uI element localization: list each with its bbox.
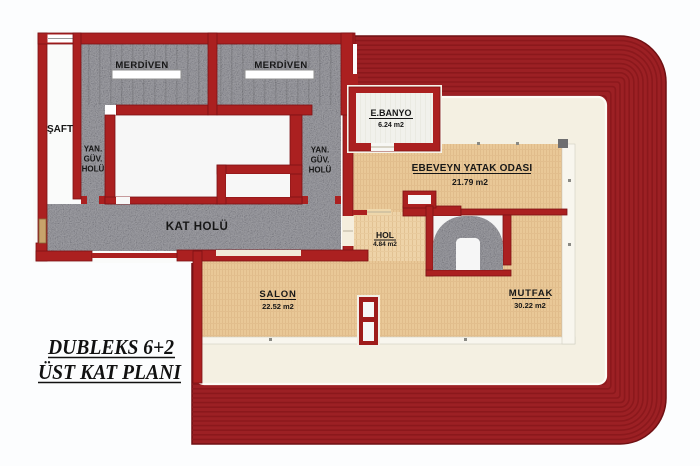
svg-text:YAN.: YAN. — [84, 145, 102, 154]
svg-text:DUBLEKS 6+2: DUBLEKS 6+2 — [47, 335, 174, 359]
svg-text:6.24 m2: 6.24 m2 — [378, 122, 404, 129]
svg-text:MUTFAK: MUTFAK — [509, 288, 553, 299]
svg-text:4.84 m2: 4.84 m2 — [373, 241, 397, 248]
svg-text:SALON: SALON — [259, 289, 296, 300]
svg-text:30.22 m2: 30.22 m2 — [514, 301, 546, 310]
svg-text:HOLÜ: HOLÜ — [309, 166, 332, 175]
svg-text:HOLÜ: HOLÜ — [82, 165, 105, 174]
svg-text:MERDİVEN: MERDİVEN — [254, 60, 307, 71]
svg-text:KAT HOLÜ: KAT HOLÜ — [166, 220, 229, 233]
svg-text:GÜV.: GÜV. — [311, 156, 330, 165]
svg-text:YAN.: YAN. — [311, 146, 329, 155]
svg-text:GÜV.: GÜV. — [84, 155, 103, 164]
svg-text:E.BANYO: E.BANYO — [370, 108, 411, 118]
svg-text:EBEVEYN YATAK ODASI: EBEVEYN YATAK ODASI — [412, 163, 533, 174]
svg-text:MERDİVEN: MERDİVEN — [115, 60, 168, 71]
svg-text:ŞAFT: ŞAFT — [47, 124, 73, 135]
svg-text:ÜST KAT PLANI: ÜST KAT PLANI — [38, 360, 182, 384]
svg-text:HOL: HOL — [376, 230, 394, 240]
svg-text:21.79 m2: 21.79 m2 — [452, 177, 488, 187]
svg-text:22.52 m2: 22.52 m2 — [262, 302, 294, 311]
